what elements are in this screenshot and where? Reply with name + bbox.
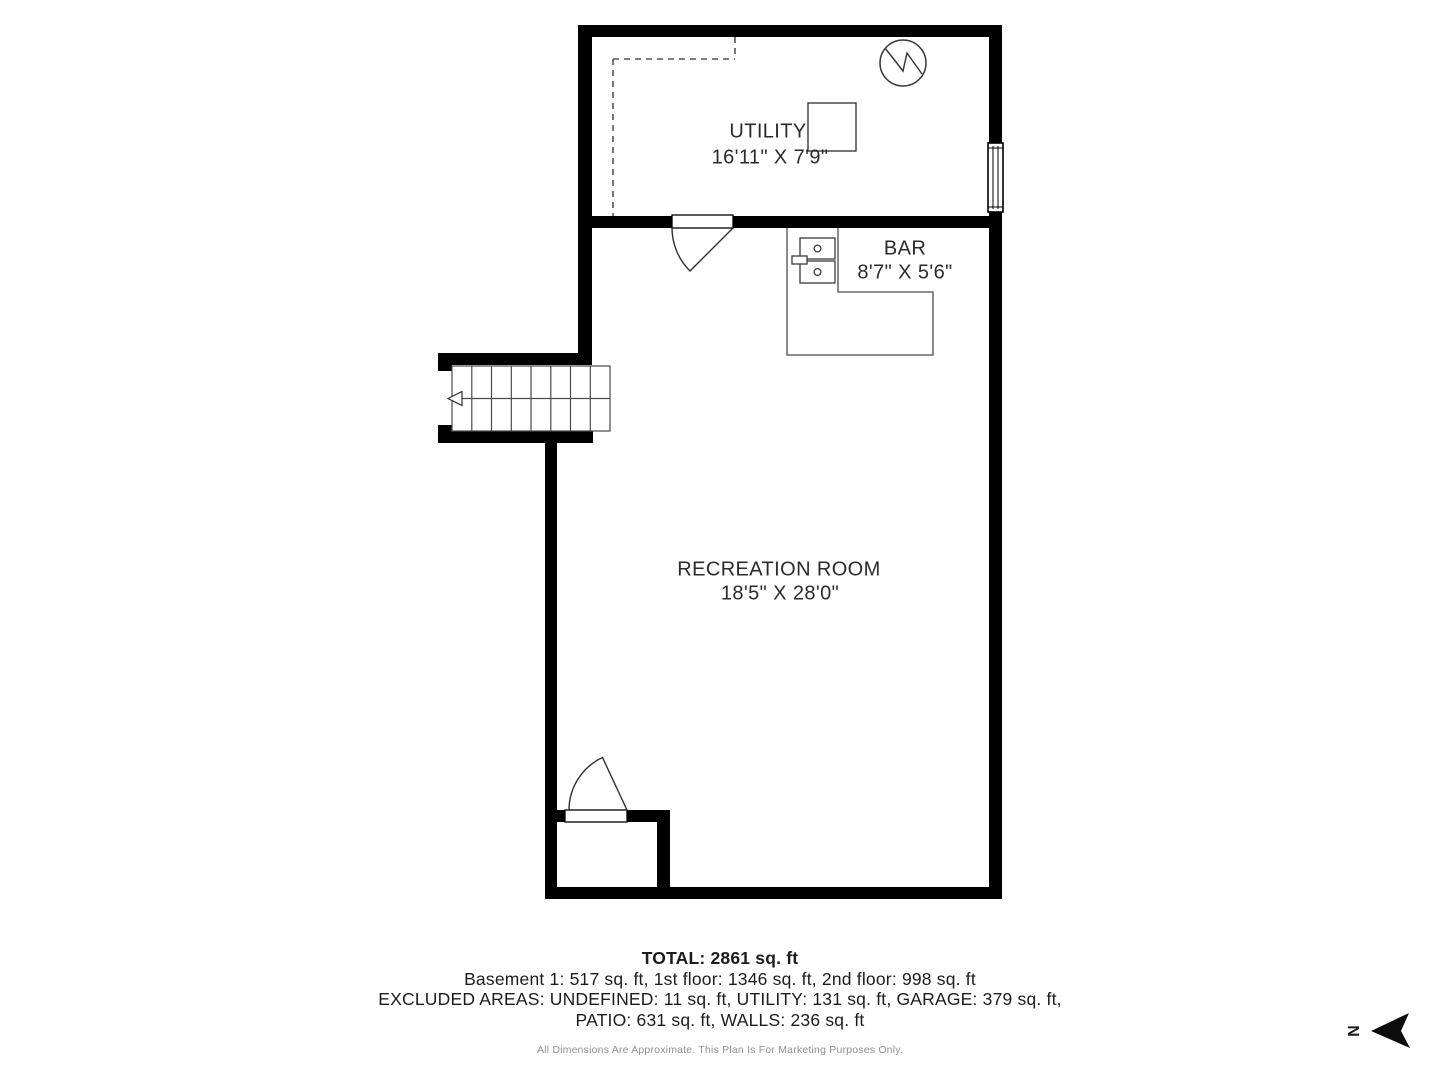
disclaimer-text: All Dimensions Are Approximate. This Pla…	[0, 1044, 1440, 1056]
bar-sink-icon	[792, 238, 835, 283]
north-label: N	[1343, 1025, 1361, 1037]
floor-areas-text: Basement 1: 517 sq. ft, 1st floor: 1346 …	[0, 969, 1440, 990]
utility-room-dimensions: 16'11" X 7'9"	[712, 147, 829, 170]
wall	[989, 25, 1002, 145]
faucet-icon	[792, 256, 807, 264]
wall	[578, 25, 592, 365]
utility-door	[672, 215, 733, 271]
stairs	[448, 366, 610, 431]
wall	[545, 431, 557, 899]
floor-plan-page: UTILITY 16'11" X 7'9" BAR 8'7" X 5'6" RE…	[0, 0, 1440, 1080]
door-leaf	[672, 215, 733, 228]
wall	[438, 353, 592, 365]
window	[988, 143, 1003, 212]
utility-room-label: UTILITY	[729, 121, 806, 144]
recreation-room-label: RECREATION ROOM	[677, 559, 880, 582]
bar-dimensions: 8'7" X 5'6"	[857, 262, 952, 285]
furnace-icon	[808, 103, 856, 151]
recreation-room-dimensions: 18'5" X 28'0"	[721, 583, 839, 606]
wall	[438, 425, 452, 443]
bottom-door	[565, 758, 627, 823]
wall	[578, 25, 1002, 37]
door-swing-arc	[672, 228, 733, 271]
total-area-text: TOTAL: 2861 sq. ft	[0, 948, 1440, 969]
wall	[657, 810, 670, 899]
wall	[545, 887, 1002, 899]
water-heater-icon	[880, 40, 926, 86]
wall	[578, 216, 672, 228]
wall	[989, 228, 1002, 899]
bar-label: BAR	[884, 238, 926, 261]
wall	[733, 216, 1002, 228]
wall	[438, 353, 452, 371]
excluded-area-outline	[613, 37, 735, 216]
excluded-areas-text-line2: PATIO: 631 sq. ft, WALLS: 236 sq. ft	[0, 1010, 1440, 1031]
excluded-areas-text-line1: EXCLUDED AREAS: UNDEFINED: 11 sq. ft, UT…	[0, 989, 1440, 1010]
door-leaf	[565, 810, 627, 822]
wall	[438, 431, 593, 443]
door-swing-arc	[569, 758, 627, 811]
